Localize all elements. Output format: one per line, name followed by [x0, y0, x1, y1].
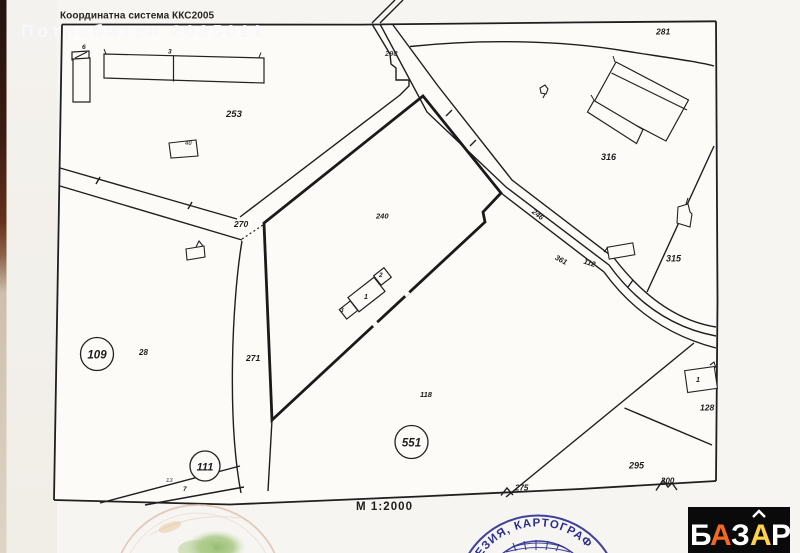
svg-text:З: З — [731, 519, 750, 552]
svg-text:298: 298 — [384, 49, 398, 58]
svg-text:3: 3 — [340, 307, 344, 314]
svg-text:Координатна система ККС2005: Координатна система ККС2005 — [60, 11, 214, 22]
svg-text:253: 253 — [225, 109, 243, 120]
svg-text:270: 270 — [233, 219, 248, 229]
svg-text:Р: Р — [771, 519, 791, 552]
svg-text:40: 40 — [184, 141, 192, 147]
svg-text:М 1:2000: М 1:2000 — [356, 501, 412, 513]
svg-text:295: 295 — [628, 461, 645, 471]
svg-text:1: 1 — [364, 294, 368, 301]
svg-text:111: 111 — [197, 462, 214, 474]
svg-text:1: 1 — [696, 377, 700, 384]
svg-text:128: 128 — [700, 403, 714, 413]
svg-text:281: 281 — [655, 27, 670, 37]
svg-text:Б: Б — [690, 519, 712, 552]
svg-text:2: 2 — [378, 272, 383, 279]
svg-text:Потребител 2035011: Потребител 2035011 — [21, 21, 262, 41]
svg-text:28: 28 — [138, 348, 148, 357]
svg-text:315: 315 — [666, 254, 682, 264]
svg-text:271: 271 — [245, 353, 260, 363]
svg-text:240: 240 — [375, 212, 389, 221]
svg-text:А: А — [750, 519, 772, 552]
svg-text:13: 13 — [166, 478, 173, 484]
svg-text:551: 551 — [402, 438, 421, 450]
svg-text:3: 3 — [168, 49, 172, 56]
svg-text:6: 6 — [82, 44, 86, 51]
svg-text:7: 7 — [183, 486, 187, 493]
svg-text:275: 275 — [514, 484, 529, 493]
svg-text:316: 316 — [601, 152, 617, 162]
svg-text:А: А — [710, 519, 732, 552]
svg-text:109: 109 — [87, 350, 107, 362]
svg-text:300: 300 — [661, 477, 675, 486]
svg-text:118: 118 — [420, 390, 433, 399]
